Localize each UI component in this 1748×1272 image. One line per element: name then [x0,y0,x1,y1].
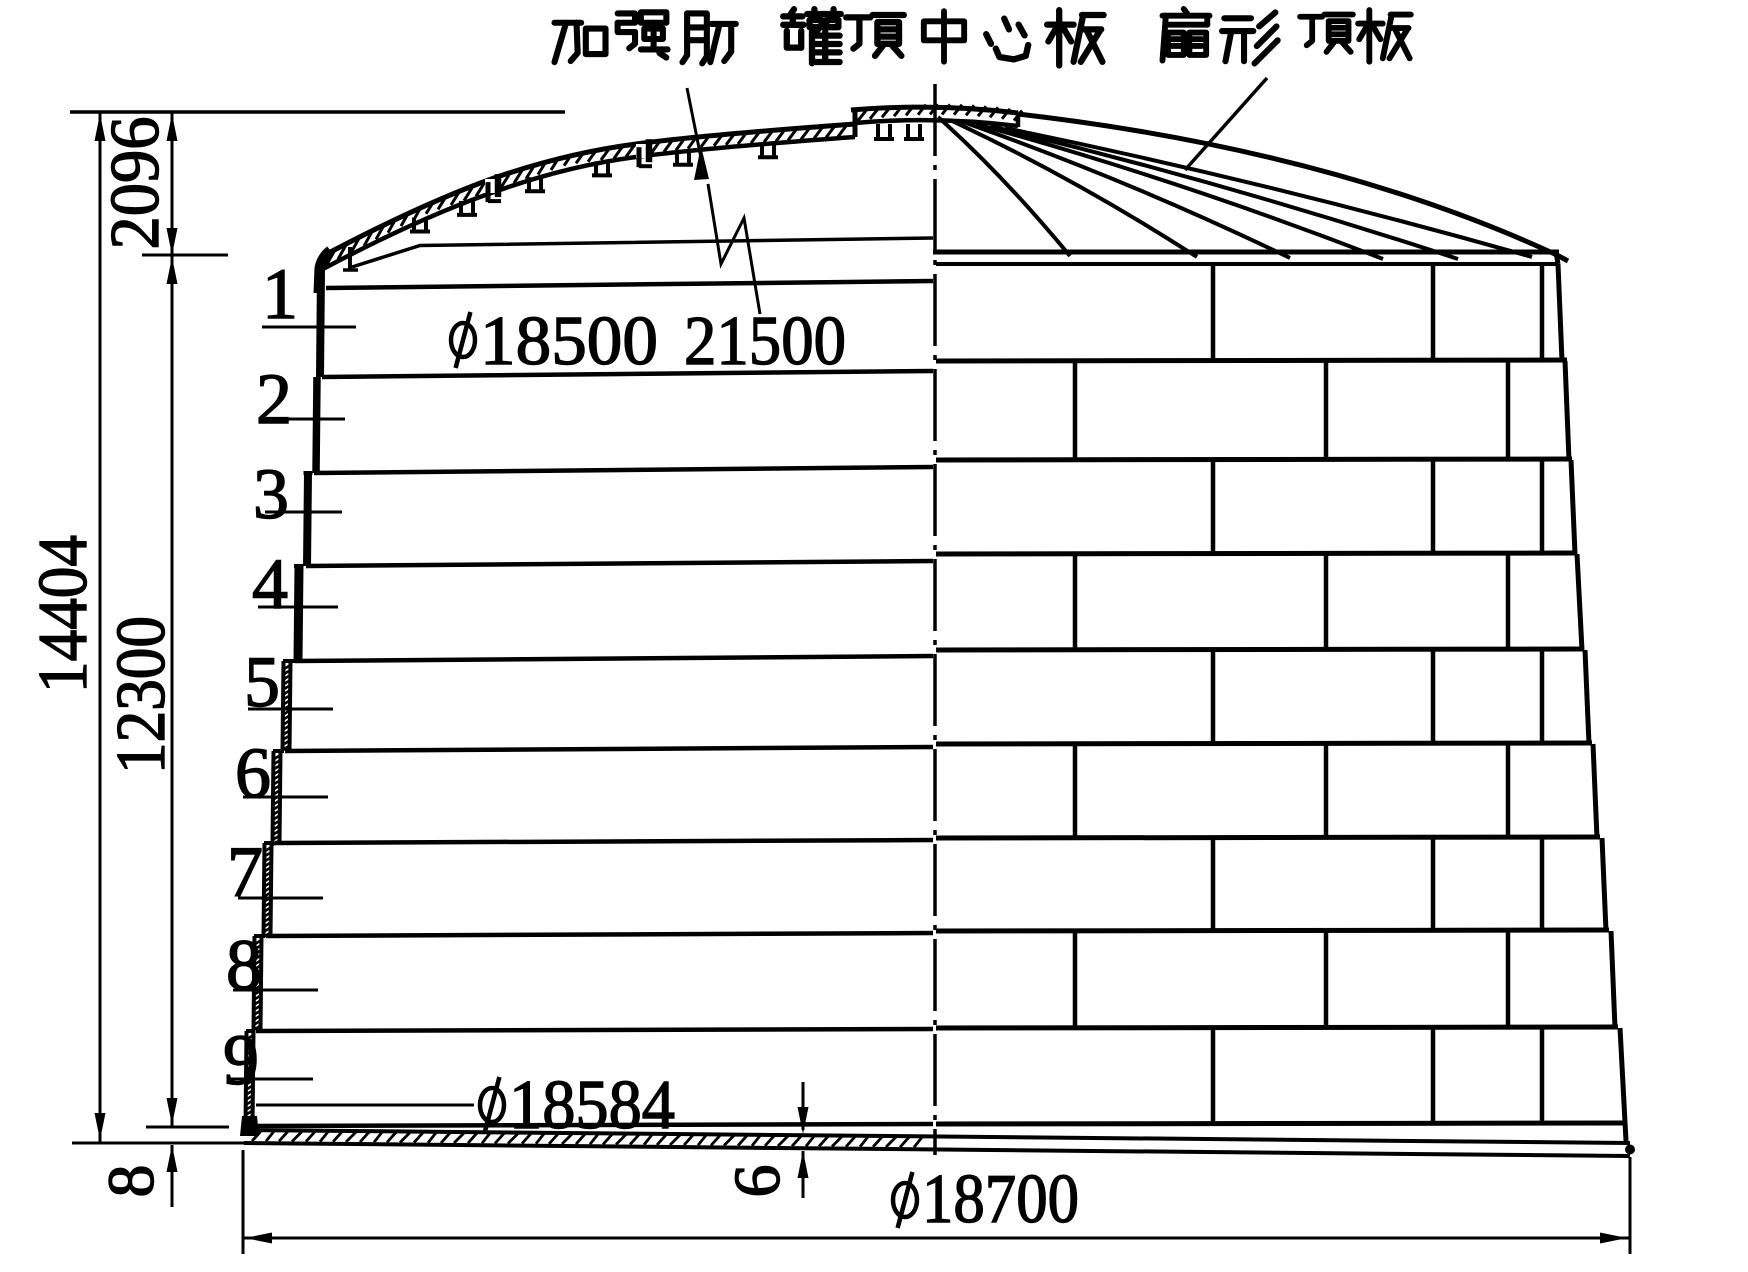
svg-text:18500: 18500 [480,303,658,380]
svg-text:3: 3 [253,454,289,534]
svg-text:2: 2 [256,359,292,439]
svg-text:18700: 18700 [922,1161,1079,1238]
svg-text:8: 8 [226,925,262,1005]
svg-text:8: 8 [95,1165,168,1198]
svg-text:6: 6 [235,733,271,813]
svg-text:6: 6 [721,1165,794,1198]
svg-text:2096: 2096 [97,117,174,250]
svg-text:9: 9 [223,1020,259,1100]
svg-text:7: 7 [227,832,263,912]
svg-text:14404: 14404 [25,535,102,693]
svg-text:18584: 18584 [509,1067,675,1144]
svg-text:1: 1 [262,254,298,334]
svg-text:21500: 21500 [684,303,846,380]
svg-text:12300: 12300 [103,616,180,774]
svg-text:4: 4 [252,544,288,624]
